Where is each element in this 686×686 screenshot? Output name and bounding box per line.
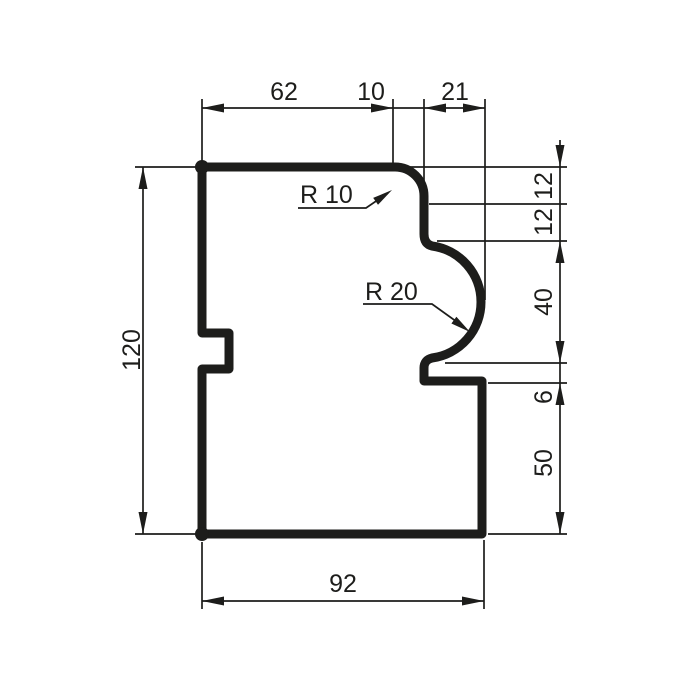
profile-outline xyxy=(195,160,482,541)
dimension-group-left: 120 xyxy=(118,167,196,534)
arrowhead-leader xyxy=(373,190,392,205)
drawing-sheet: 62 10 21 12 12 40 6 50 120 xyxy=(0,0,686,686)
arrowhead-right xyxy=(462,597,484,606)
dim-label-6: 6 xyxy=(530,390,558,404)
dim-label-12-lower: 12 xyxy=(530,208,558,236)
corner-vertex-dot-bottom-left xyxy=(195,527,209,541)
profile-path xyxy=(202,167,482,534)
radius-callout-r10: R 10 xyxy=(298,181,392,209)
dim-label-50: 50 xyxy=(530,449,558,477)
technical-drawing-canvas: 62 10 21 12 12 40 6 50 120 xyxy=(0,0,686,686)
dim-label-62: 62 xyxy=(270,78,298,106)
radius-callout-r20: R 20 xyxy=(363,278,470,332)
arrowhead-down xyxy=(556,145,565,167)
dim-label-12-upper: 12 xyxy=(530,172,558,200)
dim-label-10: 10 xyxy=(357,78,385,106)
leader-line xyxy=(363,304,464,327)
radius-label-r20: R 20 xyxy=(365,278,418,306)
dim-label-21: 21 xyxy=(441,78,469,106)
corner-vertex-dot-top-left xyxy=(195,160,209,174)
dim-label-92: 92 xyxy=(329,570,357,598)
arrowhead-down xyxy=(556,512,565,534)
arrowhead-down xyxy=(556,341,565,363)
arrowhead-up xyxy=(139,167,148,189)
radius-label-r10: R 10 xyxy=(300,181,353,209)
dimension-group-bottom: 92 xyxy=(202,540,484,609)
arrowhead-down xyxy=(139,512,148,534)
arrowhead-left xyxy=(202,104,224,113)
arrowhead-up xyxy=(556,241,565,263)
arrowhead-left xyxy=(202,597,224,606)
dim-label-40: 40 xyxy=(530,288,558,316)
dim-label-120: 120 xyxy=(118,329,146,371)
dimension-group-right: 12 12 40 6 50 xyxy=(408,140,567,534)
